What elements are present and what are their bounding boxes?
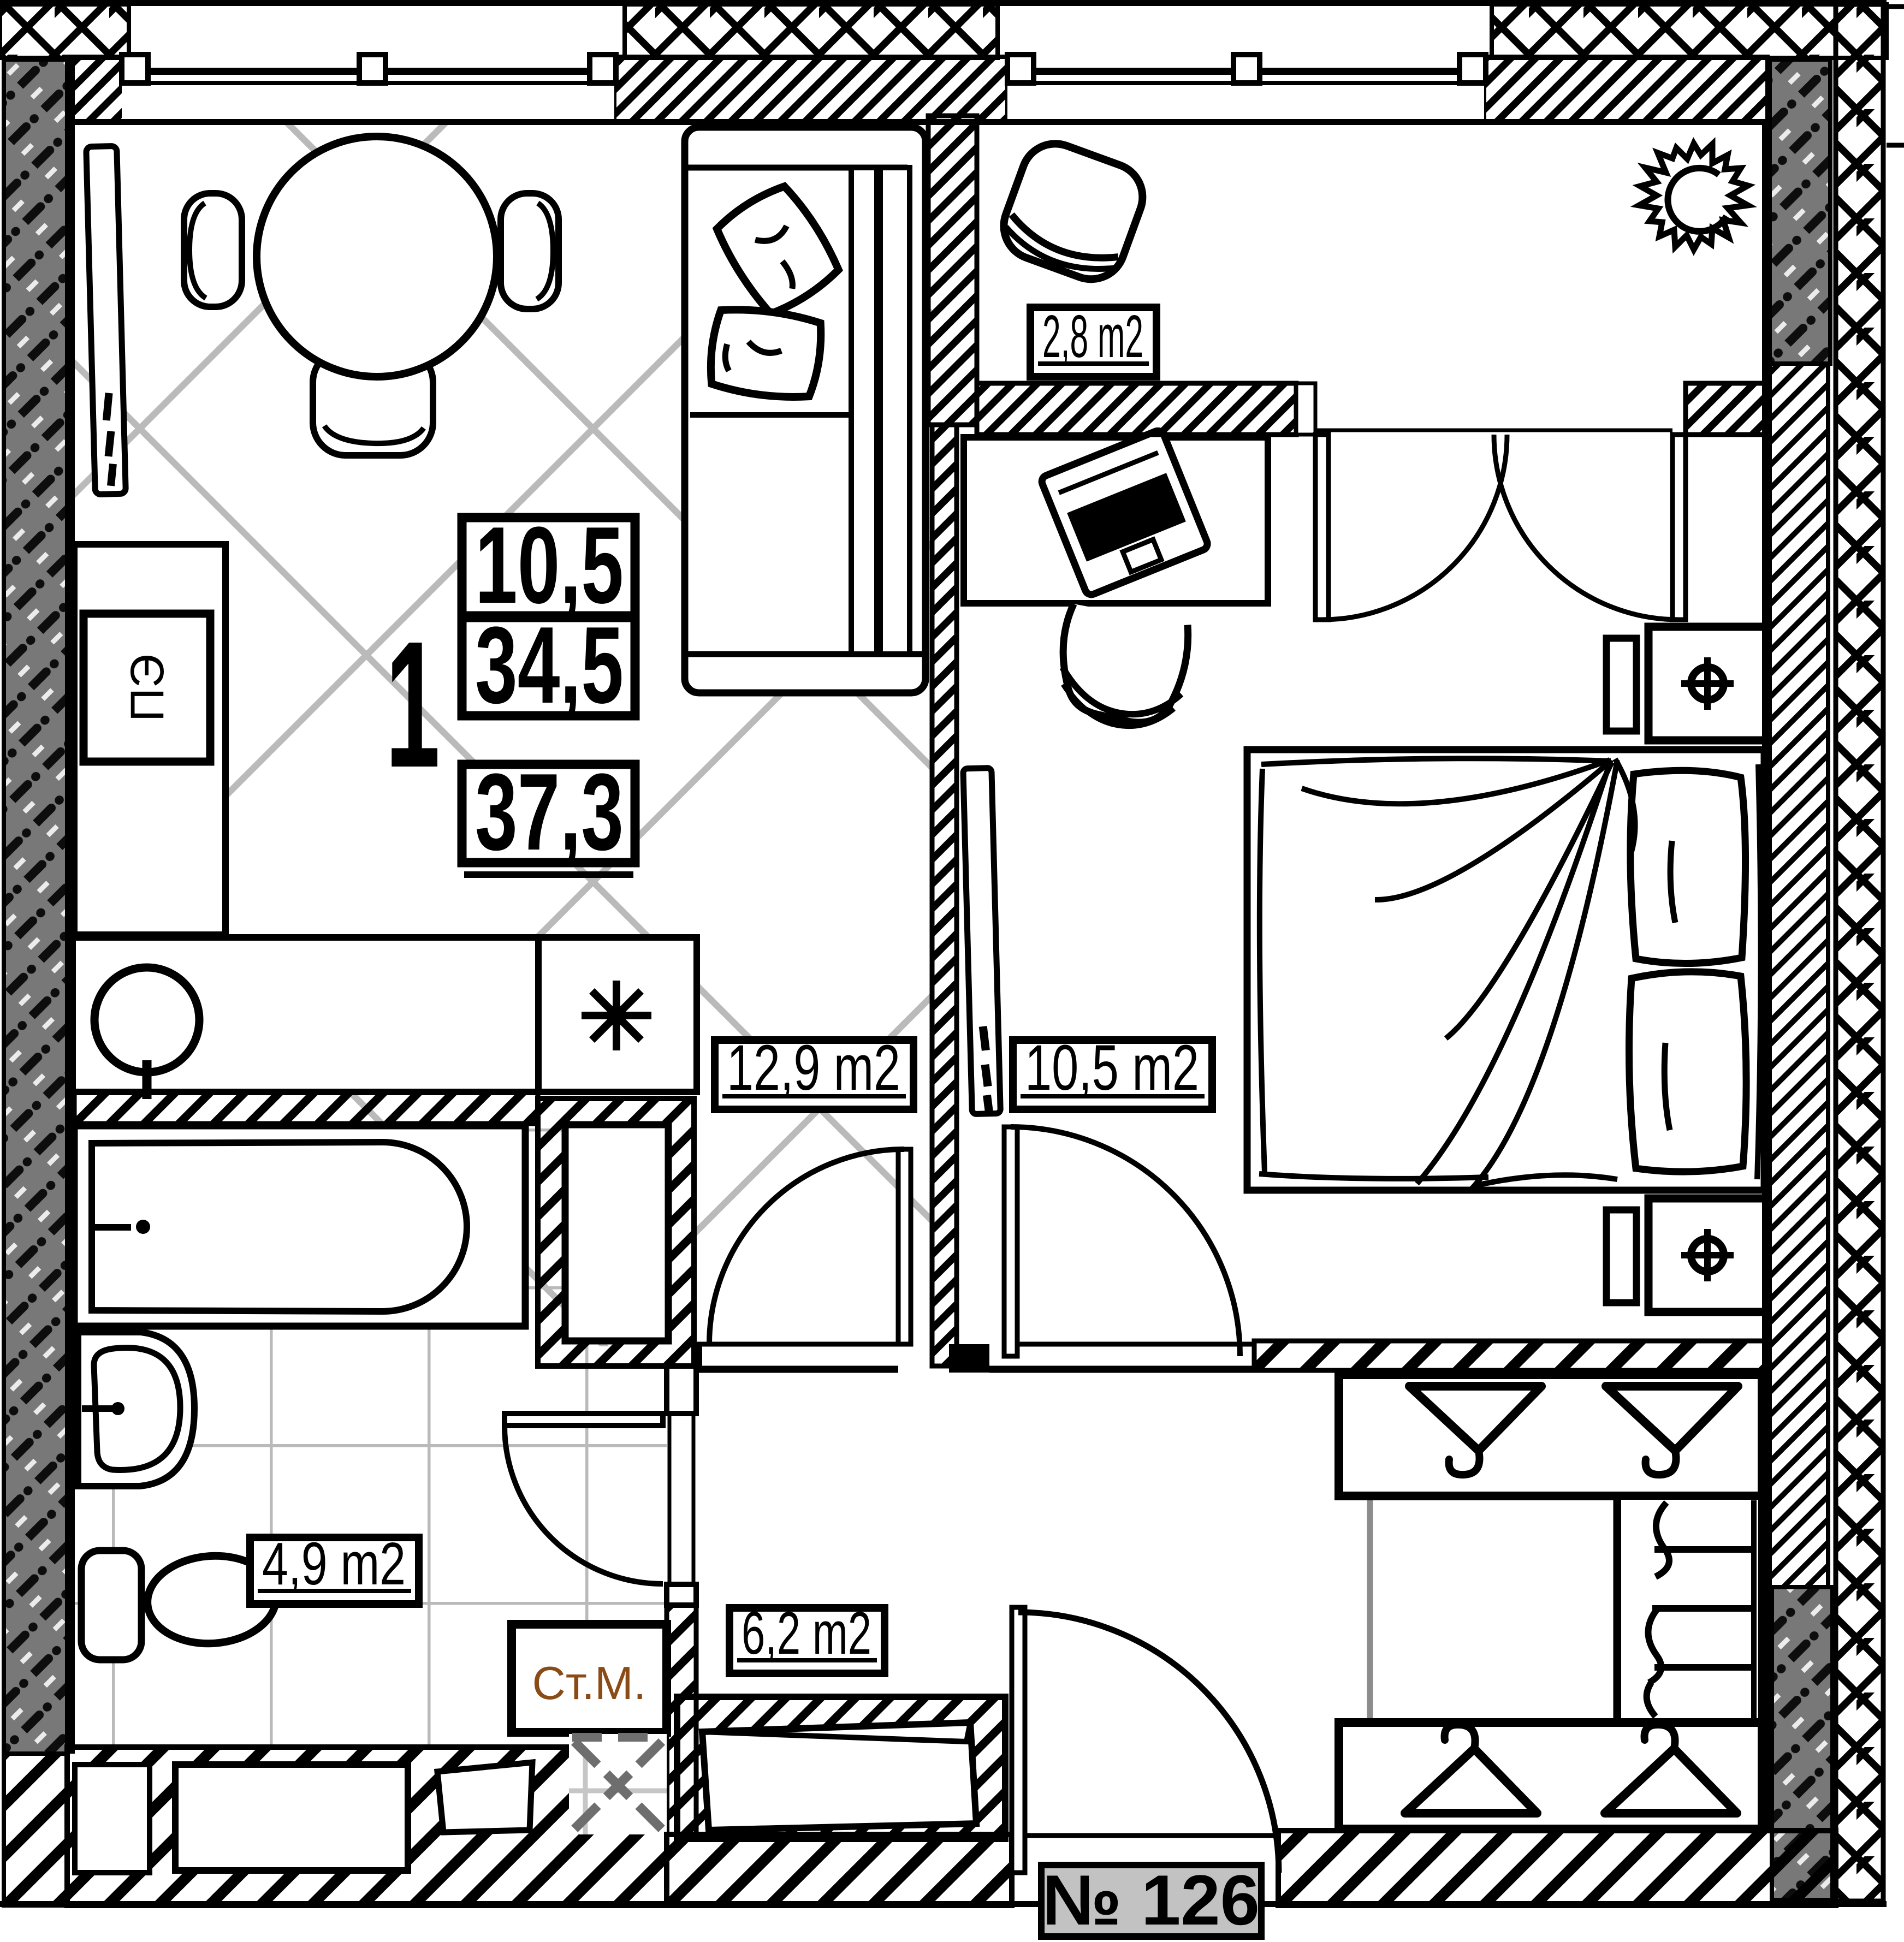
svg-text:ПЭ: ПЭ <box>121 654 174 722</box>
svg-text:12,9 m2: 12,9 m2 <box>727 1032 900 1104</box>
svg-text:Ст.М.: Ст.М. <box>532 1658 646 1709</box>
svg-text:10,5 m2: 10,5 m2 <box>1025 1032 1199 1104</box>
svg-text:2,8 m2: 2,8 m2 <box>1042 303 1143 370</box>
svg-text:1: 1 <box>385 603 440 805</box>
svg-text:№ 126: № 126 <box>1042 1860 1260 1940</box>
svg-text:34,5: 34,5 <box>475 604 624 726</box>
svg-text:4,9 m2: 4,9 m2 <box>262 1530 406 1597</box>
svg-text:6,2 m2: 6,2 m2 <box>742 1600 871 1667</box>
svg-text:37,3: 37,3 <box>475 751 624 873</box>
